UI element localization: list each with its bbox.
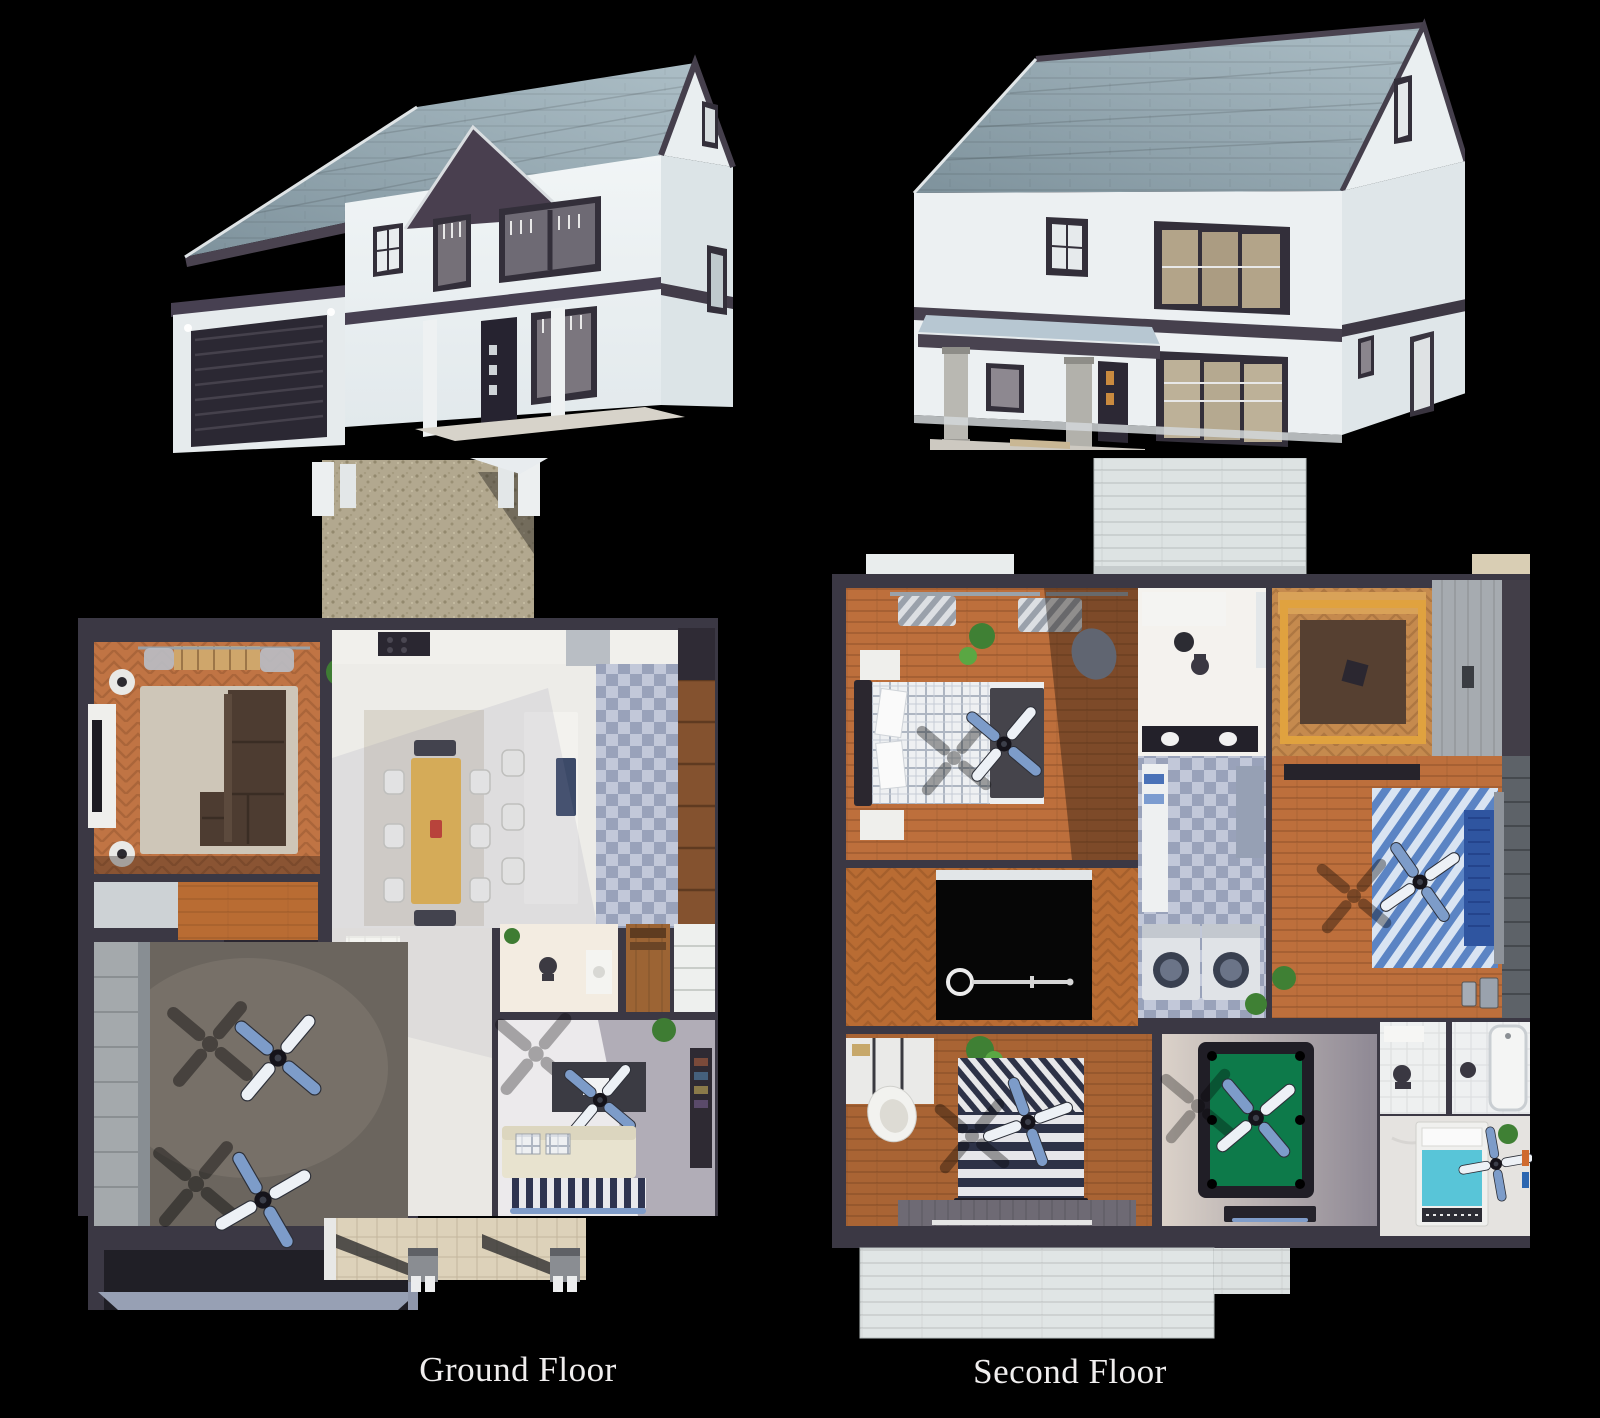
curtain — [260, 648, 294, 672]
walkway-column — [312, 462, 334, 516]
potted-plant — [1245, 993, 1267, 1015]
living-room — [88, 642, 320, 874]
stone-column — [1066, 361, 1092, 450]
master-bed — [854, 680, 1044, 806]
patio-step — [550, 1248, 580, 1292]
bathroom-b — [1452, 1022, 1530, 1114]
porch-column — [551, 307, 565, 427]
striped-rug — [510, 1178, 646, 1208]
blue-bed — [1372, 788, 1504, 968]
house-3d-render-front-left-view — [85, 15, 740, 455]
toilet — [539, 957, 557, 975]
porch-lamp — [327, 308, 335, 316]
luggage — [1462, 982, 1476, 1006]
vanity — [1142, 592, 1226, 626]
stool — [1174, 632, 1194, 652]
game-room — [1158, 1034, 1377, 1226]
pillow — [546, 1134, 570, 1154]
kitchen-tile-floor — [596, 664, 678, 928]
architectural-visualization-sheet: Ground Floor Second Floor — [0, 0, 1600, 1418]
stair-opening — [936, 880, 1092, 1020]
master-bathroom — [1138, 588, 1266, 756]
shelving — [1142, 764, 1168, 912]
bedroom-teal — [1380, 1116, 1532, 1236]
bedroom-blue — [1272, 756, 1530, 1018]
potted-plant — [1498, 1124, 1518, 1144]
potted-plant — [504, 928, 520, 944]
stone-column — [944, 351, 968, 449]
powder-room — [500, 924, 618, 1012]
bedroom-striped — [846, 1034, 1152, 1226]
refrigerator — [566, 630, 610, 666]
master-bedroom — [846, 588, 1138, 860]
toilet — [1393, 1065, 1411, 1083]
porch-lamp — [184, 324, 192, 332]
second-floor-plan-render — [832, 458, 1532, 1340]
curtain — [898, 596, 956, 626]
wall-art — [1522, 1150, 1529, 1166]
wall-art — [1522, 1172, 1529, 1188]
luggage — [1480, 978, 1498, 1008]
curtain — [144, 648, 174, 670]
potted-plant — [1272, 966, 1296, 990]
tv — [92, 720, 102, 812]
upper-triple-window — [1154, 221, 1290, 315]
study-room — [493, 1011, 715, 1216]
dryer — [1202, 924, 1260, 1000]
double-sink-counter — [1142, 726, 1258, 752]
media-shelf — [1284, 764, 1420, 780]
sink — [1384, 1026, 1424, 1042]
patio-step — [408, 1248, 438, 1292]
porch-roof-top — [1094, 458, 1306, 574]
nightstand — [860, 650, 900, 680]
stairwell — [846, 868, 1138, 1026]
ground-floor-caption: Ground Floor — [288, 1350, 748, 1390]
teal-bed — [1416, 1122, 1488, 1226]
porch-column — [423, 319, 437, 437]
bathroom-a — [1380, 1022, 1446, 1114]
laundry-room — [1138, 756, 1267, 1018]
pillow — [876, 741, 907, 789]
garage-wing — [171, 285, 347, 453]
cabinet — [1236, 766, 1264, 858]
nightstand — [860, 810, 904, 840]
potted-plant — [652, 1018, 676, 1042]
entry-walkway — [312, 458, 548, 618]
dining-kitchen — [332, 628, 715, 928]
potted-plant — [969, 623, 995, 649]
washer — [1142, 924, 1200, 1000]
speaker — [1462, 666, 1474, 688]
ground-floor-plan-render — [78, 458, 718, 1310]
front-facade — [914, 191, 1342, 450]
toilet — [1460, 1062, 1476, 1078]
house-3d-render-front-right-view — [890, 15, 1465, 450]
garage-cabinets — [94, 942, 138, 1226]
front-door — [481, 317, 517, 423]
second-floor-caption: Second Floor — [840, 1352, 1300, 1392]
pillow — [516, 1134, 540, 1154]
porch-roof-bottom — [860, 1248, 1290, 1338]
walk-in-closet — [1272, 580, 1530, 756]
